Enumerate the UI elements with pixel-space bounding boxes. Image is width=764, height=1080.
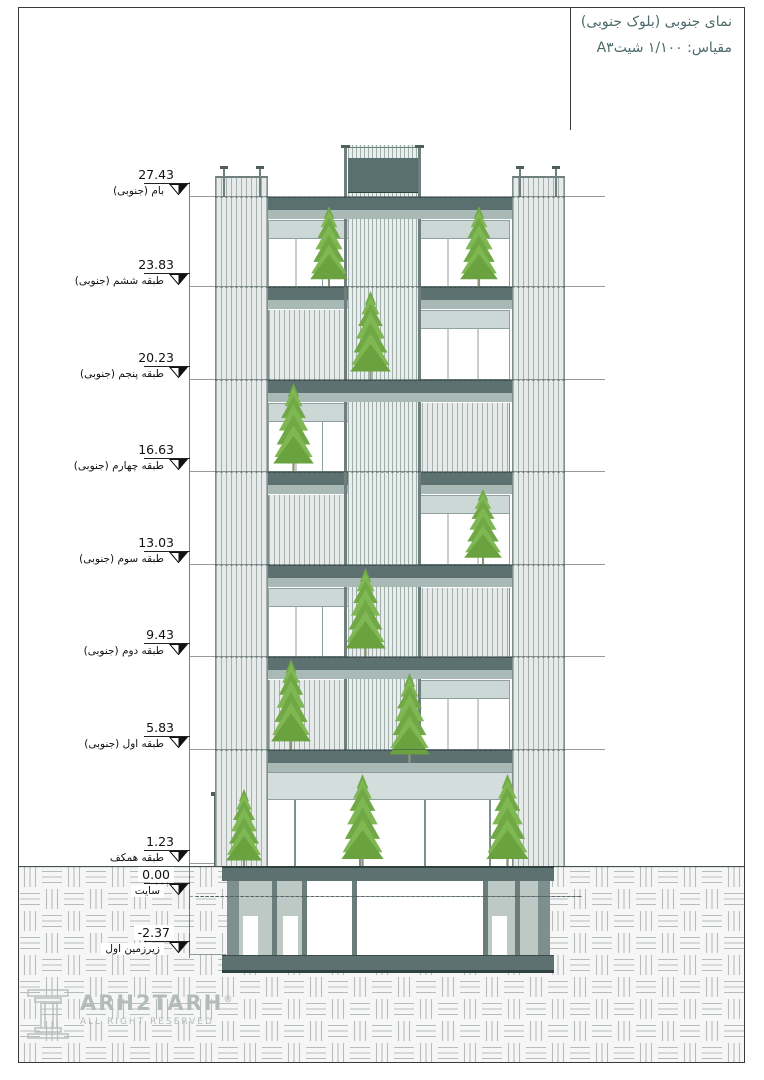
drawing-scale: مقیاس: ۱/۱۰۰ شیتA۳ bbox=[597, 40, 732, 56]
drawing-title: نمای جنوبی (بلوک جنوبی) bbox=[581, 14, 732, 30]
title-block-divider bbox=[570, 8, 571, 130]
sheet-frame bbox=[18, 7, 745, 1063]
elevation-sheet: RΛDO bbox=[0, 0, 764, 1080]
